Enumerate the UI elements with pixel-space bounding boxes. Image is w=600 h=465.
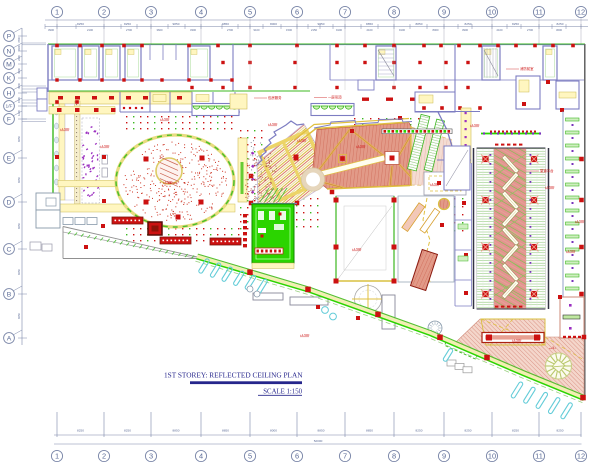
svg-text:+1.500: +1.500 (470, 123, 480, 127)
svg-text:3900: 3900 (48, 28, 54, 32)
svg-text:8000: 8000 (270, 22, 277, 26)
svg-text:窒道平台: 窒道平台 (540, 168, 554, 173)
svg-text:F: F (7, 116, 11, 123)
svg-text:6: 6 (295, 452, 299, 461)
svg-text:1/F: 1/F (6, 104, 13, 110)
svg-text:4: 4 (199, 8, 203, 17)
svg-text:8850: 8850 (366, 22, 373, 26)
svg-text:9100: 9100 (336, 28, 342, 32)
svg-text:+1.500: +1.500 (545, 185, 555, 189)
svg-text:1500: 1500 (17, 97, 21, 103)
svg-text:9850: 9850 (173, 22, 180, 26)
svg-text:8: 8 (392, 452, 396, 461)
svg-text:8250: 8250 (17, 136, 21, 142)
svg-text:4500: 4500 (17, 83, 21, 89)
svg-text:2700: 2700 (527, 28, 533, 32)
svg-text:9850: 9850 (222, 22, 229, 26)
svg-text:8250: 8250 (512, 22, 519, 26)
svg-text:一层吊顶: 一层吊顶 (328, 95, 342, 100)
svg-text:2: 2 (102, 452, 106, 461)
svg-text:دلاب: دلاب (549, 346, 556, 350)
svg-text:3900: 3900 (462, 28, 468, 32)
svg-text:9100: 9100 (399, 28, 405, 32)
svg-text:包房服务: 包房服务 (268, 95, 282, 100)
svg-text:8250: 8250 (465, 22, 472, 26)
svg-text:8250: 8250 (124, 428, 131, 432)
svg-text:8250: 8250 (17, 223, 21, 229)
svg-text:8250: 8250 (77, 22, 84, 26)
svg-text:8250: 8250 (17, 269, 21, 275)
svg-text:1200: 1200 (17, 110, 21, 116)
svg-text:+1.500: +1.500 (300, 333, 310, 337)
svg-text:8850: 8850 (416, 22, 423, 26)
svg-text:H: H (7, 90, 12, 97)
svg-text:7: 7 (343, 8, 347, 17)
svg-text:3: 3 (149, 452, 153, 461)
svg-text:8250: 8250 (557, 22, 564, 26)
svg-text:E: E (7, 155, 12, 162)
svg-text:8850: 8850 (318, 428, 325, 432)
svg-text:+1.500: +1.500 (60, 127, 70, 131)
svg-text:2100: 2100 (497, 28, 503, 32)
svg-text:8250: 8250 (465, 428, 472, 432)
svg-text:+1.500: +1.500 (163, 180, 173, 184)
svg-text:8000: 8000 (270, 428, 277, 432)
svg-text:2100: 2100 (367, 28, 373, 32)
svg-text:2100: 2100 (87, 28, 93, 32)
svg-text:3: 3 (149, 8, 153, 17)
svg-text:8250: 8250 (557, 428, 564, 432)
svg-text:+1.500: +1.500 (356, 144, 366, 148)
svg-text:2400: 2400 (17, 55, 21, 61)
svg-text:8250: 8250 (77, 428, 84, 432)
svg-text:1: 1 (55, 8, 59, 17)
svg-text:7: 7 (343, 452, 347, 461)
svg-text:+1.500: +1.500 (160, 117, 170, 121)
svg-text:N: N (7, 48, 12, 55)
svg-text:D: D (7, 199, 12, 206)
svg-text:8850: 8850 (222, 428, 229, 432)
svg-text:9850: 9850 (318, 22, 325, 26)
svg-text:9: 9 (442, 452, 446, 461)
svg-text:8250: 8250 (17, 177, 21, 183)
svg-text:4500: 4500 (17, 68, 21, 74)
svg-text:+1.500: +1.500 (430, 182, 440, 186)
svg-text:8250: 8250 (124, 22, 131, 26)
svg-text:8250: 8250 (512, 428, 519, 432)
svg-text:8: 8 (392, 8, 396, 17)
svg-text:11: 11 (535, 8, 543, 17)
svg-text:+1.500: +1.500 (512, 338, 522, 342)
svg-text:C: C (7, 246, 12, 253)
svg-text:P: P (7, 33, 12, 40)
svg-text:K: K (7, 75, 12, 82)
svg-text:+1.500: +1.500 (575, 219, 585, 223)
svg-text:6: 6 (295, 8, 299, 17)
svg-text:1: 1 (55, 452, 59, 461)
svg-text:3300: 3300 (190, 28, 196, 32)
svg-text:1ST STOREY: REFLECTED CEILING: 1ST STOREY: REFLECTED CEILING PLAN (164, 371, 303, 380)
svg-text:SCALE 1:150: SCALE 1:150 (263, 389, 302, 396)
svg-text:3600: 3600 (556, 28, 562, 32)
svg-text:12: 12 (577, 452, 585, 461)
svg-text:5: 5 (248, 452, 252, 461)
svg-text:+1.500: +1.500 (352, 247, 362, 251)
svg-text:3600: 3600 (157, 28, 163, 32)
svg-text:11: 11 (535, 452, 543, 461)
svg-text:5: 5 (248, 8, 252, 17)
svg-text:9: 9 (442, 8, 446, 17)
svg-text:消防前室: 消防前室 (520, 66, 534, 71)
svg-text:8250: 8250 (17, 313, 21, 319)
svg-text:52000: 52000 (314, 439, 323, 443)
svg-text:4: 4 (199, 452, 203, 461)
svg-text:2150: 2150 (311, 28, 317, 32)
svg-text:+1.500: +1.500 (268, 122, 278, 126)
svg-text:9100: 9100 (254, 28, 260, 32)
svg-text:B: B (7, 291, 12, 298)
svg-text:10: 10 (488, 8, 496, 17)
svg-text:+1.500: +1.500 (297, 138, 307, 142)
svg-text:+1.500: +1.500 (566, 249, 576, 253)
svg-text:8250: 8250 (416, 428, 423, 432)
svg-text:7800: 7800 (17, 37, 21, 43)
svg-text:3300: 3300 (17, 45, 21, 51)
svg-text:2700: 2700 (126, 28, 132, 32)
svg-text:2: 2 (102, 8, 106, 17)
svg-text:2700: 2700 (227, 28, 233, 32)
svg-text:12: 12 (577, 8, 585, 17)
svg-text:M: M (6, 61, 12, 68)
svg-text:8850: 8850 (173, 428, 180, 432)
svg-text:A: A (7, 335, 12, 342)
svg-text:8850: 8850 (366, 428, 373, 432)
svg-text:+1.500: +1.500 (100, 144, 110, 148)
svg-text:1500: 1500 (286, 28, 292, 32)
svg-text:8000: 8000 (433, 28, 439, 32)
svg-text:10: 10 (488, 452, 496, 461)
